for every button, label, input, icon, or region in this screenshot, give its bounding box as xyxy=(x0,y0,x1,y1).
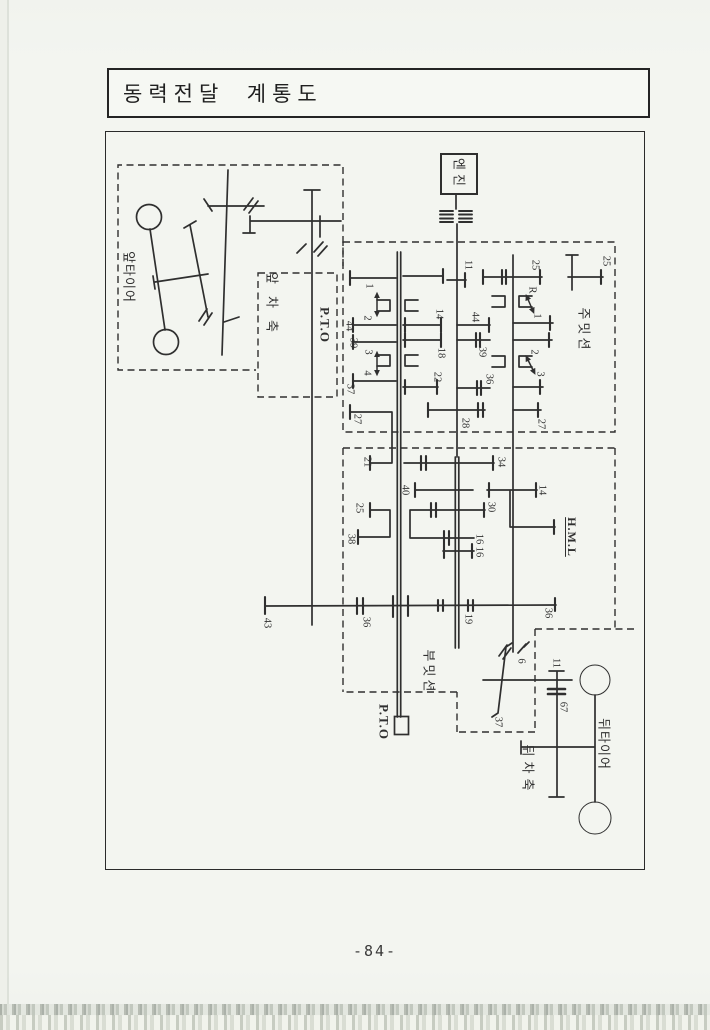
dashed-compartments xyxy=(118,165,638,732)
front-axle-group xyxy=(137,170,342,625)
reverse-idler-shaft xyxy=(566,255,578,290)
front-axleshaft-box xyxy=(258,273,337,397)
scanned-page: 동력전달 계통도 xyxy=(0,0,710,1030)
clutch-symbol xyxy=(440,211,472,222)
output-row xyxy=(265,605,556,606)
rear-axle-group xyxy=(483,642,611,834)
transmission-diagram xyxy=(0,0,710,1030)
front-axle-box xyxy=(118,165,343,370)
page-number: -84- xyxy=(330,942,420,960)
pto-shaft xyxy=(397,252,400,717)
main-gearbox-group xyxy=(350,269,603,470)
front-tire-top xyxy=(137,205,162,230)
engine-group xyxy=(440,154,477,457)
rear-tire-top xyxy=(580,665,610,695)
pto-output-end xyxy=(395,717,409,735)
main-shaft-lower xyxy=(455,457,459,648)
engine-box xyxy=(441,154,477,194)
rear-tire-bottom xyxy=(579,802,611,834)
scan-noise-band-light xyxy=(0,1015,710,1030)
front-tire-bottom xyxy=(154,330,179,355)
